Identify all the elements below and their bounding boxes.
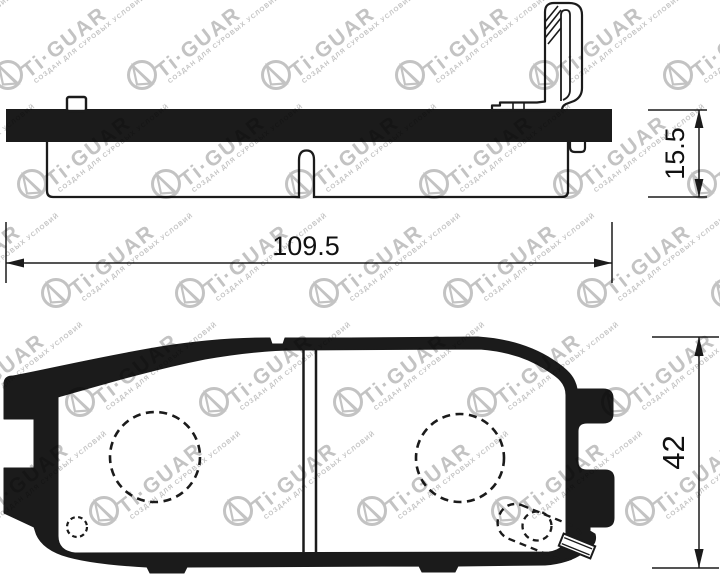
arrowhead-down xyxy=(695,179,704,197)
dimension-thickness: 15.5 xyxy=(648,110,707,197)
technical-drawing-canvas: 15.5 109.5 xyxy=(0,0,720,574)
clip-tail-below-plate xyxy=(570,142,585,152)
dimension-width: 109.5 xyxy=(6,222,612,283)
friction-material-profile xyxy=(47,142,568,197)
dimension-height-label: 42 xyxy=(656,435,691,469)
arrowhead-down xyxy=(694,549,703,568)
backing-plate-edge xyxy=(6,109,612,142)
indicator-dashed-circle xyxy=(523,512,552,541)
dashed-circle-left xyxy=(110,412,200,502)
dimension-width-label: 109.5 xyxy=(272,231,340,261)
arrowhead-left xyxy=(6,259,24,268)
dashed-circle-right xyxy=(416,414,504,502)
side-view: 15.5 109.5 xyxy=(6,3,707,283)
center-slot xyxy=(304,350,317,552)
arrowhead-up xyxy=(695,110,704,128)
pad-outline xyxy=(4,337,614,573)
front-view: 42 xyxy=(4,337,719,573)
arrowhead-up xyxy=(694,337,703,356)
dashed-circle-small xyxy=(67,517,87,537)
dimension-thickness-label: 15.5 xyxy=(660,127,690,180)
dimension-height: 42 xyxy=(652,337,719,568)
plate-tab xyxy=(67,97,86,111)
arrowhead-right xyxy=(594,259,612,268)
brake-pad-drawing: 15.5 109.5 xyxy=(0,0,720,574)
